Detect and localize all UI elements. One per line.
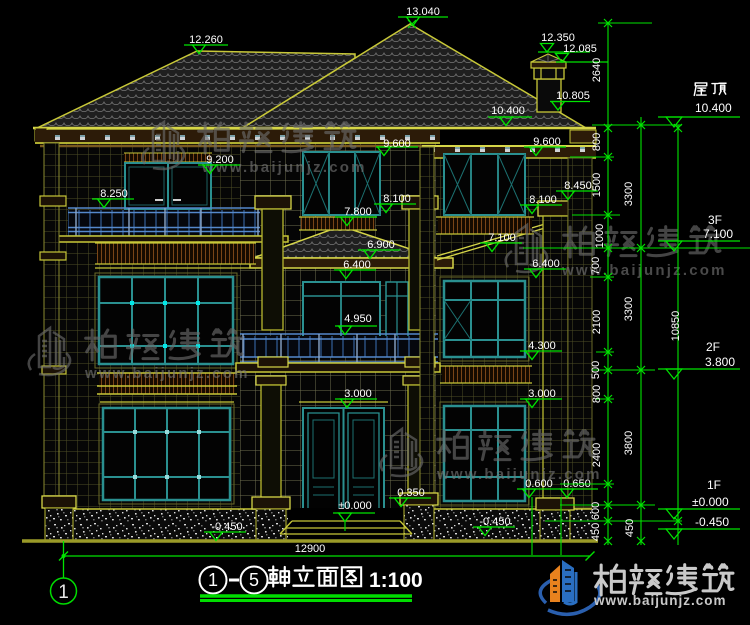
svg-text:3.800: 3.800 (705, 355, 735, 369)
svg-text:8.100: 8.100 (383, 193, 411, 205)
svg-text:800: 800 (591, 385, 603, 403)
svg-text:2100: 2100 (591, 310, 603, 334)
svg-text:3800: 3800 (623, 431, 635, 455)
svg-text:-0.450: -0.450 (695, 515, 729, 529)
svg-text:-0.450: -0.450 (211, 521, 242, 533)
svg-text:9.600: 9.600 (533, 136, 561, 148)
svg-text:800: 800 (591, 133, 603, 151)
svg-text:0.600: 0.600 (525, 478, 553, 490)
svg-text:10.400: 10.400 (695, 101, 732, 115)
svg-text:www.baijunjz.com: www.baijunjz.com (84, 365, 250, 382)
svg-text:600: 600 (590, 502, 602, 520)
svg-text:9.600: 9.600 (383, 138, 411, 150)
svg-text:1000: 1000 (594, 224, 606, 248)
svg-text:450: 450 (624, 519, 636, 537)
svg-text:12900: 12900 (295, 543, 326, 555)
svg-text:±0.000: ±0.000 (338, 500, 372, 512)
svg-text:7.100: 7.100 (703, 227, 733, 241)
svg-text:10850: 10850 (670, 311, 682, 342)
svg-text:3.000: 3.000 (528, 388, 556, 400)
svg-text:10.400: 10.400 (491, 105, 525, 117)
svg-text:3F: 3F (708, 213, 722, 227)
svg-text:1F: 1F (707, 478, 721, 492)
svg-text:7.800: 7.800 (344, 206, 372, 218)
svg-text:8.100: 8.100 (529, 194, 557, 206)
svg-text:2400: 2400 (591, 443, 603, 467)
svg-text:12.085: 12.085 (563, 43, 597, 55)
svg-text:3300: 3300 (623, 182, 635, 206)
svg-text:12.260: 12.260 (189, 34, 223, 46)
svg-text:www.baijunjz.com: www.baijunjz.com (593, 593, 727, 608)
svg-text:6.900: 6.900 (367, 239, 395, 251)
svg-text:www.baijunjz.com: www.baijunjz.com (561, 262, 727, 279)
svg-text:6.400: 6.400 (532, 258, 560, 270)
svg-text:1: 1 (58, 582, 69, 603)
svg-text:6.400: 6.400 (343, 259, 371, 271)
svg-text:-0.450: -0.450 (479, 516, 510, 528)
svg-text:13.040: 13.040 (406, 6, 440, 18)
svg-text:2F: 2F (706, 340, 720, 354)
svg-text:2640: 2640 (591, 58, 603, 82)
svg-text:3.000: 3.000 (344, 388, 372, 400)
svg-text:10.805: 10.805 (556, 90, 590, 102)
svg-text:9.200: 9.200 (206, 154, 234, 166)
svg-text:8.250: 8.250 (100, 188, 128, 200)
svg-text:500: 500 (590, 361, 602, 379)
svg-text:3300: 3300 (623, 297, 635, 321)
svg-text:4.300: 4.300 (528, 340, 556, 352)
svg-text:±0.000: ±0.000 (692, 495, 729, 509)
svg-text:4.950: 4.950 (344, 313, 372, 325)
svg-text:7.100: 7.100 (488, 232, 516, 244)
svg-text:1: 1 (208, 570, 218, 590)
svg-text:1:100: 1:100 (369, 569, 423, 592)
svg-text:450: 450 (590, 523, 602, 541)
svg-text:0.350: 0.350 (397, 487, 425, 499)
svg-text:1500: 1500 (591, 173, 603, 197)
svg-text:5: 5 (249, 570, 259, 590)
svg-text:700: 700 (590, 257, 602, 275)
svg-text:8.450: 8.450 (564, 180, 592, 192)
